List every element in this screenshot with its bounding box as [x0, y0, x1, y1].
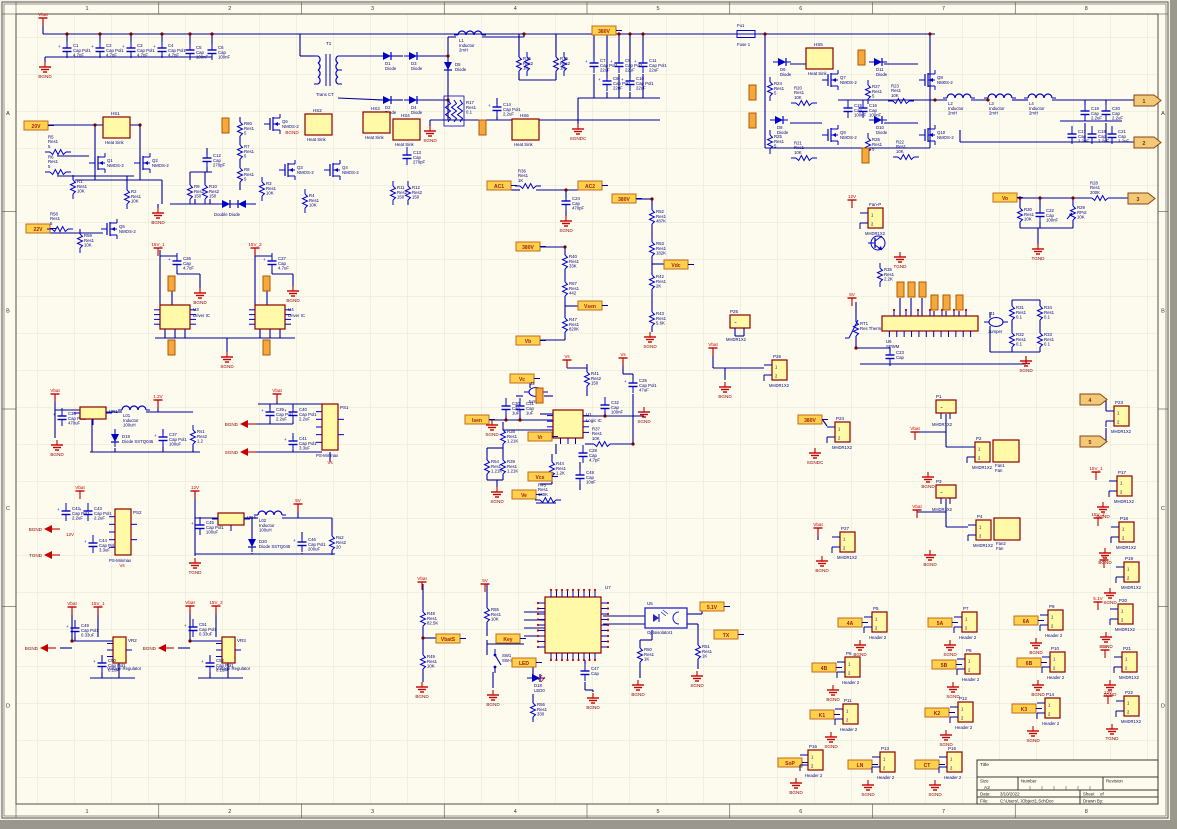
vnetlabel[interactable] — [931, 295, 938, 310]
schematic-text: Cap — [591, 671, 599, 676]
schematic-text: P21 — [1123, 646, 1132, 651]
schematic-text: + — [122, 44, 125, 49]
schematic-text: 6 — [799, 6, 802, 12]
schematic-text: 2.2uF — [94, 516, 105, 521]
schematic-text: HS2 — [313, 108, 322, 113]
schematic-text: 7 — [942, 809, 945, 815]
schematic-text: P24 — [836, 416, 845, 421]
schematic-text: SGND — [485, 432, 499, 437]
schematic-text: 0.1 — [1044, 315, 1051, 320]
schematic-text: Fan — [995, 468, 1003, 473]
schematic-text: 4.7nF — [106, 53, 117, 58]
plabel-12v[interactable]: 12V — [66, 532, 75, 537]
schematic-text: Driver IC — [288, 313, 305, 318]
junction-dot — [210, 32, 213, 35]
junction-dot — [628, 32, 631, 35]
vnetlabel[interactable] — [536, 388, 543, 403]
schematic-text: 2 — [1143, 141, 1146, 147]
title-block: TitleSizeA2NumberRevisionDate:3/10/2022S… — [977, 760, 1158, 804]
schematic-text: 82.5K — [427, 621, 438, 626]
schematic-text: Diode — [876, 130, 888, 135]
schematic-text: 0.1 — [466, 110, 473, 115]
schematic-text: Double Diode — [214, 212, 241, 217]
schematic-text: SGND — [824, 744, 838, 749]
schematic-text: + — [624, 379, 627, 384]
schematic-text: Header 2 — [869, 635, 887, 640]
schematic-text: 1.2K — [556, 471, 565, 476]
schematic-text: BGND — [853, 652, 867, 657]
schematic-text: 10K — [1024, 217, 1032, 222]
schematic-text: 5V — [1102, 644, 1109, 649]
schematic-text: Heat Sink — [105, 140, 124, 145]
schematic-text: MHDR1X2 — [1121, 585, 1142, 590]
schematic-text: BGND — [25, 646, 39, 651]
schematic-text: BGND — [815, 568, 829, 573]
schematic-text: VR3 — [237, 638, 246, 643]
schematic-text: Vs — [620, 352, 626, 357]
schematic-text: Vs — [564, 354, 570, 359]
schematic-text: 33K — [569, 264, 577, 269]
schematic-text: BGND — [38, 74, 52, 79]
schematic-text: + — [621, 77, 624, 82]
schematic-text: D — [6, 704, 10, 710]
schematic-text: 2.2uF — [1112, 116, 1123, 121]
schematic-text: + — [84, 539, 87, 544]
schematic-text: 2.2K — [884, 277, 893, 282]
schematic-text: ~ — [734, 320, 737, 325]
schematic-text: Header 2 — [1045, 633, 1063, 638]
schematic-text: 10K — [1077, 215, 1085, 220]
schematic-text: NMOS-2 — [342, 170, 359, 175]
schematic-text: 10K — [592, 436, 600, 441]
schematic-text: 22uF — [636, 86, 646, 91]
schematic-text: T1 — [326, 41, 332, 46]
schematic-text: 15V_2 — [248, 242, 262, 247]
schematic-text: Header 2 — [1042, 721, 1060, 726]
schematic-text: + — [261, 408, 264, 413]
junction-dot — [928, 32, 931, 35]
junction-dot — [421, 636, 424, 639]
schematic-text: 22uF — [625, 68, 635, 73]
junction-dot — [518, 418, 521, 421]
schematic-text: BGND — [193, 300, 207, 305]
schematic-text: SGND — [690, 683, 704, 688]
component-u7[interactable]: U7 — [537, 585, 611, 661]
schematic-text: + — [53, 412, 56, 417]
schematic-text: BGND — [50, 452, 64, 457]
schematic-text: Res Thermal — [860, 326, 885, 331]
schematic-text: 100nF — [854, 113, 867, 118]
vnetlabel[interactable] — [168, 340, 175, 355]
schematic-text: VbatS — [441, 637, 456, 643]
schematic-text: U3 — [193, 307, 199, 312]
schematic-text: Vcs — [536, 475, 545, 481]
junction-dot — [93, 123, 96, 126]
schematic-text: 100nF — [611, 410, 624, 415]
junction-dot — [98, 32, 101, 35]
vnetlabel[interactable] — [943, 295, 950, 310]
schematic-text: 10K — [77, 189, 85, 194]
schematic-text: 2.2uF — [72, 516, 83, 521]
schematic-text: Fuse 1 — [737, 42, 751, 47]
schematic-text: 15V_2 — [1091, 512, 1105, 517]
schematic-text: Date: — [980, 792, 991, 797]
schematic-text: MHDR1X2 — [973, 543, 994, 548]
plabel-bgnd[interactable]: BGND — [285, 130, 299, 135]
schematic-text: Vs — [1101, 554, 1107, 559]
vnetlabel[interactable] — [749, 113, 756, 128]
plabel-vs[interactable]: Vs — [119, 563, 125, 568]
schematic-text: PS1 — [340, 405, 349, 410]
schematic-text: MHDR1X2 — [726, 337, 747, 342]
schematic-text: Isen — [472, 418, 482, 424]
schematic-text: C — [1161, 506, 1165, 512]
schematic-text: Heat Sink — [395, 142, 414, 147]
schematic-text: SGND — [637, 419, 651, 424]
junction-dot — [70, 639, 73, 642]
schematic-text: 442 — [569, 291, 577, 296]
schematic-canvas[interactable]: 1122334455667788AABBCCDDVbatBGND+C1Cap P… — [0, 0, 1177, 829]
schematic-text: MHDR1X2 — [932, 507, 953, 512]
schematic-text: SGND — [1026, 738, 1040, 743]
schematic-text: 5.6K — [656, 321, 665, 326]
schematic-text: BGND — [789, 790, 803, 795]
vnetlabel[interactable] — [919, 282, 926, 297]
schematic-text: P20 — [1119, 598, 1128, 603]
schematic-text: Diode — [455, 67, 467, 72]
schematic-text: 1K — [518, 178, 523, 183]
schematic-text: MHDR1X2 — [972, 465, 993, 470]
schematic-text: 2 — [228, 6, 231, 12]
schematic-text: NMOS-2 — [282, 124, 299, 129]
schematic-text: HS3 — [371, 106, 380, 111]
plabel-vs[interactable]: Vs — [327, 460, 333, 465]
schematic-text: J1 — [990, 311, 995, 316]
schematic-text: Driver IC — [193, 313, 210, 318]
schematic-text: 10uF — [586, 480, 596, 485]
schematic-text: + — [201, 659, 204, 664]
schematic-text: 0.1uF — [108, 668, 119, 673]
vnetlabel[interactable] — [908, 282, 915, 297]
schematic-text: Vbat — [38, 12, 48, 17]
schematic-text: Diode SSTQ045 — [122, 439, 154, 444]
schematic-text: P6 — [846, 651, 852, 656]
schematic-text: 2.2uF — [1118, 139, 1129, 144]
schematic-text: SGNDC — [570, 136, 587, 141]
schematic-text: 1K — [644, 657, 649, 662]
schematic-text: VR2 — [128, 638, 137, 643]
schematic-text: SGND — [490, 499, 504, 504]
schematic-text: P13 — [881, 746, 890, 751]
schematic-text: P8 — [966, 648, 972, 653]
schematic-text: Fan-P — [869, 202, 881, 207]
schematic-text: 15V_2 — [209, 600, 223, 605]
schematic-text: 10K — [309, 203, 317, 208]
schematic-text: + — [58, 44, 61, 49]
schematic-text: P1 — [936, 394, 942, 399]
schematic-text: Heat Sink — [365, 135, 384, 140]
schematic-text: 150 — [591, 381, 599, 386]
schematic-text: Fu1 — [737, 23, 745, 28]
junction-dot — [1071, 196, 1074, 199]
schematic-text: 1.21K — [507, 439, 518, 444]
junction-dot — [631, 442, 634, 445]
schematic-text: TGND — [188, 570, 202, 575]
schematic-text: 470pF — [572, 206, 585, 211]
schematic-text: SGND — [928, 792, 942, 797]
schematic-text: 10K — [266, 191, 274, 196]
schematic-text: 5 — [1089, 440, 1092, 446]
schematic-text: Heat Sink — [808, 71, 827, 76]
schematic-text: + — [488, 103, 491, 108]
schematic-text: 2mH — [989, 111, 998, 116]
schematic-text: 100uF — [169, 442, 182, 447]
schematic-text: 1 — [85, 6, 88, 12]
junction-dot — [1038, 196, 1041, 199]
schematic-text: BGND — [151, 220, 165, 225]
schematic-text: D — [1161, 704, 1165, 710]
schematic-text: TGND — [1105, 736, 1119, 741]
schematic-text: 7 — [942, 6, 945, 12]
schematic-text: 15V_1 — [151, 242, 165, 247]
schematic-text: 2.2uF — [1091, 116, 1102, 121]
schematic-text: Optoisolator1 — [647, 630, 673, 635]
vnetlabel[interactable] — [749, 85, 756, 100]
schematic-text: 22uF — [600, 68, 610, 73]
schematic-text: 4.7nF — [137, 53, 148, 58]
schematic-text: MHDR1X2 — [1115, 627, 1136, 632]
schematic-text: SGNDC — [807, 460, 824, 465]
junction-dot — [763, 32, 766, 35]
schematic-text: MHDR1X2 — [832, 445, 853, 450]
schematic-text: 2mH — [459, 48, 468, 53]
schematic-text: AC2 — [585, 184, 595, 190]
schematic-text: Diode — [780, 72, 792, 77]
schematic-text: + — [154, 433, 157, 438]
schematic-text: Diode — [411, 110, 423, 115]
schematic-text: NMOS-2 — [840, 135, 857, 140]
schematic-text: P5 — [873, 606, 879, 611]
schematic-text: HS1 — [111, 111, 120, 116]
schematic-text: 1.21K — [507, 469, 518, 474]
schematic-text: + — [284, 408, 287, 413]
schematic-text: 4.7pF — [589, 458, 600, 463]
schematic-text: TGND — [893, 264, 907, 269]
schematic-text: Header 2 — [955, 725, 973, 730]
schematic-text: Diode — [385, 66, 397, 71]
schematic-text: MHDR1X2 — [1111, 429, 1132, 434]
junction-dot — [129, 32, 132, 35]
schematic-text: 0.33uF — [199, 632, 213, 637]
schematic-text: LED — [519, 661, 529, 667]
schematic-text: + — [184, 623, 187, 628]
schematic-text: 380V — [598, 29, 610, 35]
schematic-text: + — [284, 437, 287, 442]
schematic-text: BGND — [1098, 560, 1112, 565]
vnetlabel[interactable] — [897, 282, 904, 297]
schematic-text: B — [6, 309, 10, 315]
schematic-text: 22V — [34, 227, 44, 233]
schematic-text: C — [6, 506, 10, 512]
schematic-text: 0.1 — [1016, 315, 1023, 320]
schematic-text: Size — [980, 779, 989, 784]
junction-dot — [522, 32, 525, 35]
schematic-text: 3/10/2022 — [1000, 792, 1020, 797]
schematic-text: P7 — [963, 606, 969, 611]
schematic-text: 100uH — [259, 528, 272, 533]
schematic-text: Logic IC — [586, 418, 602, 423]
schematic-text: BGND — [718, 394, 732, 399]
schematic-text: 5V — [849, 292, 856, 297]
schematic-text: CT — [924, 763, 931, 769]
schematic-text: Header 2 — [842, 680, 860, 685]
schematic-text: 150 — [397, 195, 405, 200]
schematic-text: 1 — [1143, 99, 1146, 105]
schematic-text: 2.2uF — [299, 417, 310, 422]
schematic-text: 1K — [702, 654, 707, 659]
schematic-text: 2.2uF — [1078, 139, 1089, 144]
schematic-text: BGND — [923, 562, 937, 567]
junction-dot — [933, 98, 936, 101]
schematic-text: 200K — [1090, 190, 1100, 195]
schematic-text: Vc — [519, 377, 525, 383]
schematic-text: MHDR1X2 — [1114, 499, 1135, 504]
schematic-text: 1uF — [512, 411, 520, 416]
vnetlabel[interactable] — [858, 50, 865, 65]
junction-dot — [854, 346, 857, 349]
schematic-text: 12V — [66, 532, 75, 537]
schematic-text: Vo — [1002, 196, 1008, 202]
schematic-text: MHDR1X2 — [1121, 719, 1142, 724]
schematic-text: 2.2uF — [276, 417, 287, 422]
junction-dot — [188, 32, 191, 35]
schematic-text: SoP — [785, 761, 795, 767]
schematic-text: 1.2 — [197, 439, 204, 444]
schematic-text: 10K — [896, 149, 904, 154]
schematic-text: K3 — [1021, 707, 1028, 713]
schematic-text: BGND — [486, 702, 500, 707]
schematic-text: File: — [980, 799, 988, 804]
schematic-editor-page: 1122334455667788AABBCCDDVbatBGND+C1Cap P… — [0, 0, 1177, 829]
schematic-text: 10K — [427, 664, 435, 669]
schematic-text: Vbat — [50, 388, 60, 393]
schematic-text: Vbat — [67, 601, 77, 606]
schematic-text: 2K — [656, 284, 661, 289]
schematic-text: + — [293, 538, 296, 543]
schematic-text: 2.2uF — [1098, 139, 1109, 144]
schematic-text: + — [263, 257, 266, 262]
schematic-text: 20 — [336, 545, 341, 550]
schematic-text: P15 — [948, 746, 957, 751]
schematic-text: 10K — [794, 95, 802, 100]
vnetlabel[interactable] — [862, 148, 869, 163]
schematic-text: K2 — [934, 711, 941, 717]
schematic-text: 6A — [1023, 619, 1030, 625]
schematic-text: 0.1uF — [216, 668, 227, 673]
junction-dot — [65, 32, 68, 35]
junction-dot — [504, 418, 507, 421]
vnetlabel[interactable] — [263, 276, 270, 291]
schematic-text: 100nF — [196, 55, 209, 60]
schematic-text: HS4 — [401, 113, 410, 118]
schematic-text: Header 2 — [877, 775, 895, 780]
junction-dot — [617, 32, 620, 35]
schematic-text: 4.7nF — [73, 53, 84, 58]
schematic-text: 5.1V — [1093, 596, 1103, 601]
schematic-text: BGND — [415, 694, 429, 699]
schematic-text: P23 — [1115, 400, 1124, 405]
schematic-text: 12V — [1104, 690, 1113, 695]
schematic-text: U5 — [647, 601, 653, 606]
schematic-text: 4.7nF — [168, 53, 179, 58]
schematic-text: 100K — [538, 492, 548, 497]
schematic-text: SGND — [225, 450, 239, 455]
schematic-text: 10K — [891, 93, 899, 98]
schematic-text: 1uF — [526, 411, 534, 416]
schematic-text: B — [1161, 309, 1165, 315]
schematic-text: ~ — [940, 490, 943, 495]
schematic-text: 0.1 — [1044, 342, 1051, 347]
schematic-text: 3.3uF — [99, 548, 110, 553]
schematic-text: + — [57, 507, 60, 512]
schematic-text: P27 — [841, 526, 850, 531]
schematic-text: 1.2V — [153, 394, 163, 399]
schematic-text: NM0S-2 — [937, 80, 953, 85]
schematic-text: 3 — [371, 809, 374, 815]
schematic-text: MHDR1X2 — [865, 231, 886, 236]
schematic-text: 8 — [1085, 6, 1088, 12]
schematic-text: BGND — [286, 298, 300, 303]
schematic-text: 10K — [491, 617, 499, 622]
schematic-text: P3 — [936, 479, 942, 484]
schematic-text: A2 — [984, 785, 990, 791]
vnetlabel[interactable] — [956, 295, 963, 310]
schematic-text: Sheet — [1083, 792, 1095, 797]
schematic-text: Vbat — [185, 600, 195, 605]
schematic-text: Number — [1021, 779, 1037, 784]
schematic-text: C:\Users\..\Object1.SchDoc — [1000, 799, 1054, 804]
schematic-text: Revision — [1106, 779, 1123, 784]
vnetlabel[interactable] — [168, 276, 175, 291]
schematic-text: + — [634, 59, 637, 64]
schematic-text: P12 — [959, 696, 968, 701]
schematic-text: Vbat — [912, 504, 922, 509]
schematic-text: VR1 — [109, 409, 118, 414]
schematic-text: 487K — [656, 219, 666, 224]
vnetlabel[interactable] — [479, 120, 486, 135]
schematic-text: + — [91, 44, 94, 49]
schematic-text: Header 2 — [944, 775, 962, 780]
schematic-text: P18 — [1120, 516, 1129, 521]
schematic-text: 47uF — [639, 388, 649, 393]
schematic-text: U4 — [288, 307, 294, 312]
schematic-text: VR4 — [247, 515, 256, 520]
schematic-text: 5 — [656, 809, 659, 815]
schematic-text: Vbat — [75, 485, 85, 490]
vnetlabel[interactable] — [222, 118, 229, 133]
schematic-text: 4 — [1089, 398, 1092, 404]
schematic-text: 182K — [656, 251, 666, 256]
schematic-text: LED0 — [534, 688, 545, 693]
schematic-text: BGND — [921, 484, 935, 489]
schematic-text: Vbat — [417, 576, 427, 581]
schematic-text: 3.3uF — [299, 446, 310, 451]
schematic-text: Vb — [525, 339, 531, 345]
schematic-text: BGND — [586, 705, 600, 710]
vnetlabel[interactable] — [263, 340, 270, 355]
schematic-text: 4 — [514, 6, 517, 12]
schematic-text: 330 — [537, 712, 545, 717]
